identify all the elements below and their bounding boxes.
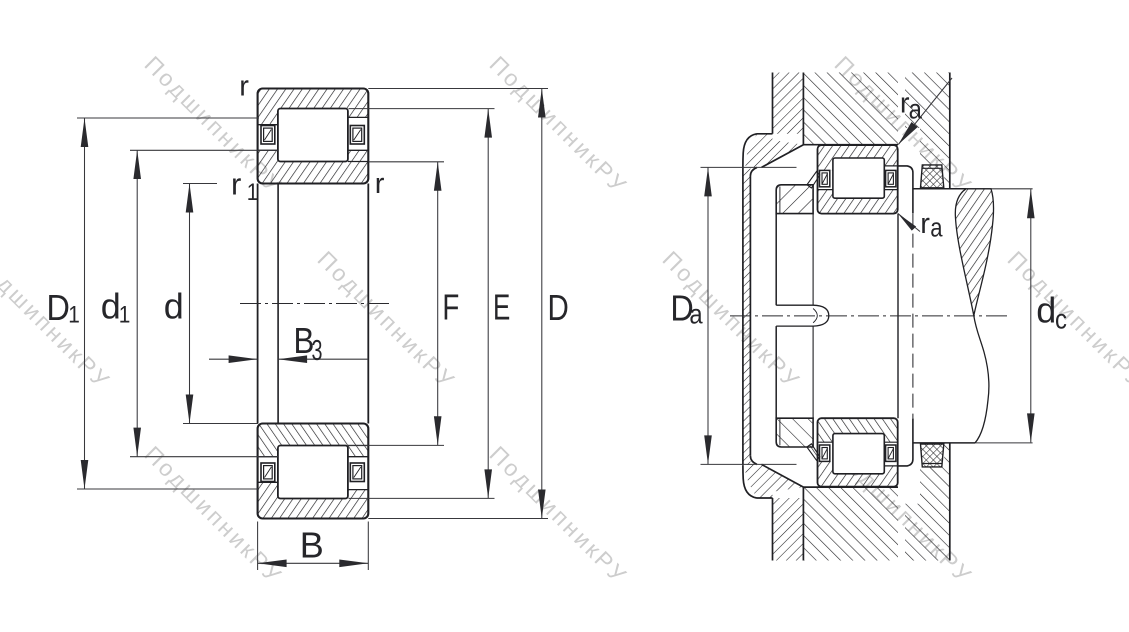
svg-text:3: 3 (312, 335, 323, 367)
svg-text:r: r (920, 208, 930, 240)
svg-text:r: r (375, 168, 385, 200)
svg-text:d: d (164, 286, 184, 327)
svg-text:c: c (1055, 303, 1067, 335)
svg-text:r: r (239, 71, 249, 103)
svg-text:d: d (101, 286, 121, 327)
svg-text:a: a (689, 298, 703, 330)
svg-text:B: B (300, 525, 324, 566)
svg-text:1: 1 (68, 300, 80, 328)
svg-text:r: r (231, 167, 241, 202)
svg-text:a: a (909, 93, 923, 125)
svg-text:E: E (493, 287, 510, 327)
svg-text:1: 1 (119, 300, 131, 328)
svg-text:D: D (47, 288, 70, 328)
svg-text:1: 1 (247, 178, 259, 206)
svg-text:d: d (1036, 290, 1056, 331)
svg-text:D: D (548, 287, 569, 327)
svg-text:F: F (442, 287, 459, 327)
svg-text:a: a (930, 214, 943, 243)
